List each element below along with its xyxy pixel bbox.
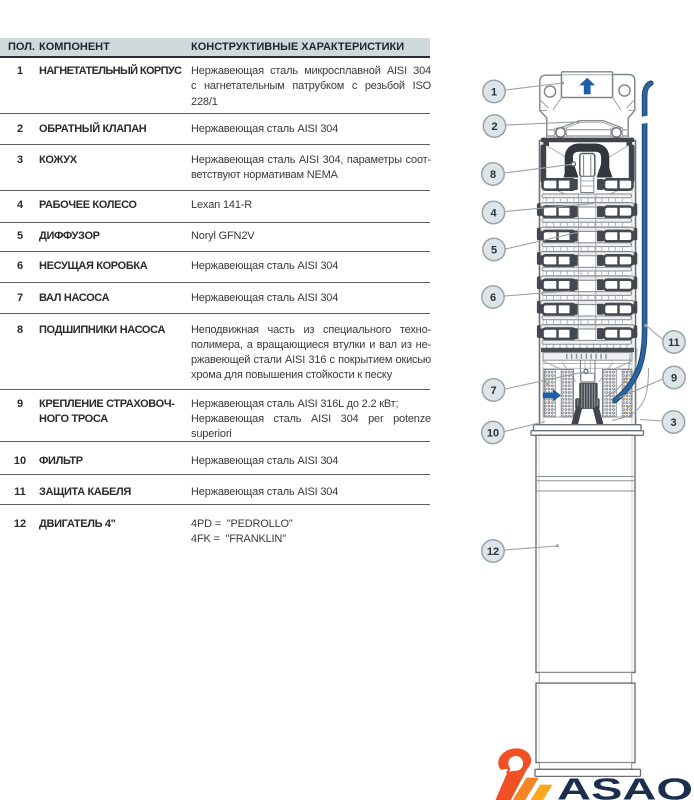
svg-text:1: 1 (491, 87, 497, 99)
svg-text:4: 4 (490, 208, 497, 220)
svg-text:2: 2 (491, 121, 497, 133)
svg-text:9: 9 (671, 373, 677, 385)
svg-text:7: 7 (490, 385, 496, 397)
svg-text:6: 6 (490, 292, 496, 304)
svg-text:5: 5 (491, 245, 497, 257)
svg-text:10: 10 (487, 428, 499, 440)
svg-text:3: 3 (670, 417, 676, 429)
svg-text:11: 11 (668, 337, 680, 349)
svg-text:8: 8 (490, 169, 496, 181)
svg-text:12: 12 (487, 546, 499, 558)
svg-text:ASAO: ASAO (557, 773, 693, 800)
